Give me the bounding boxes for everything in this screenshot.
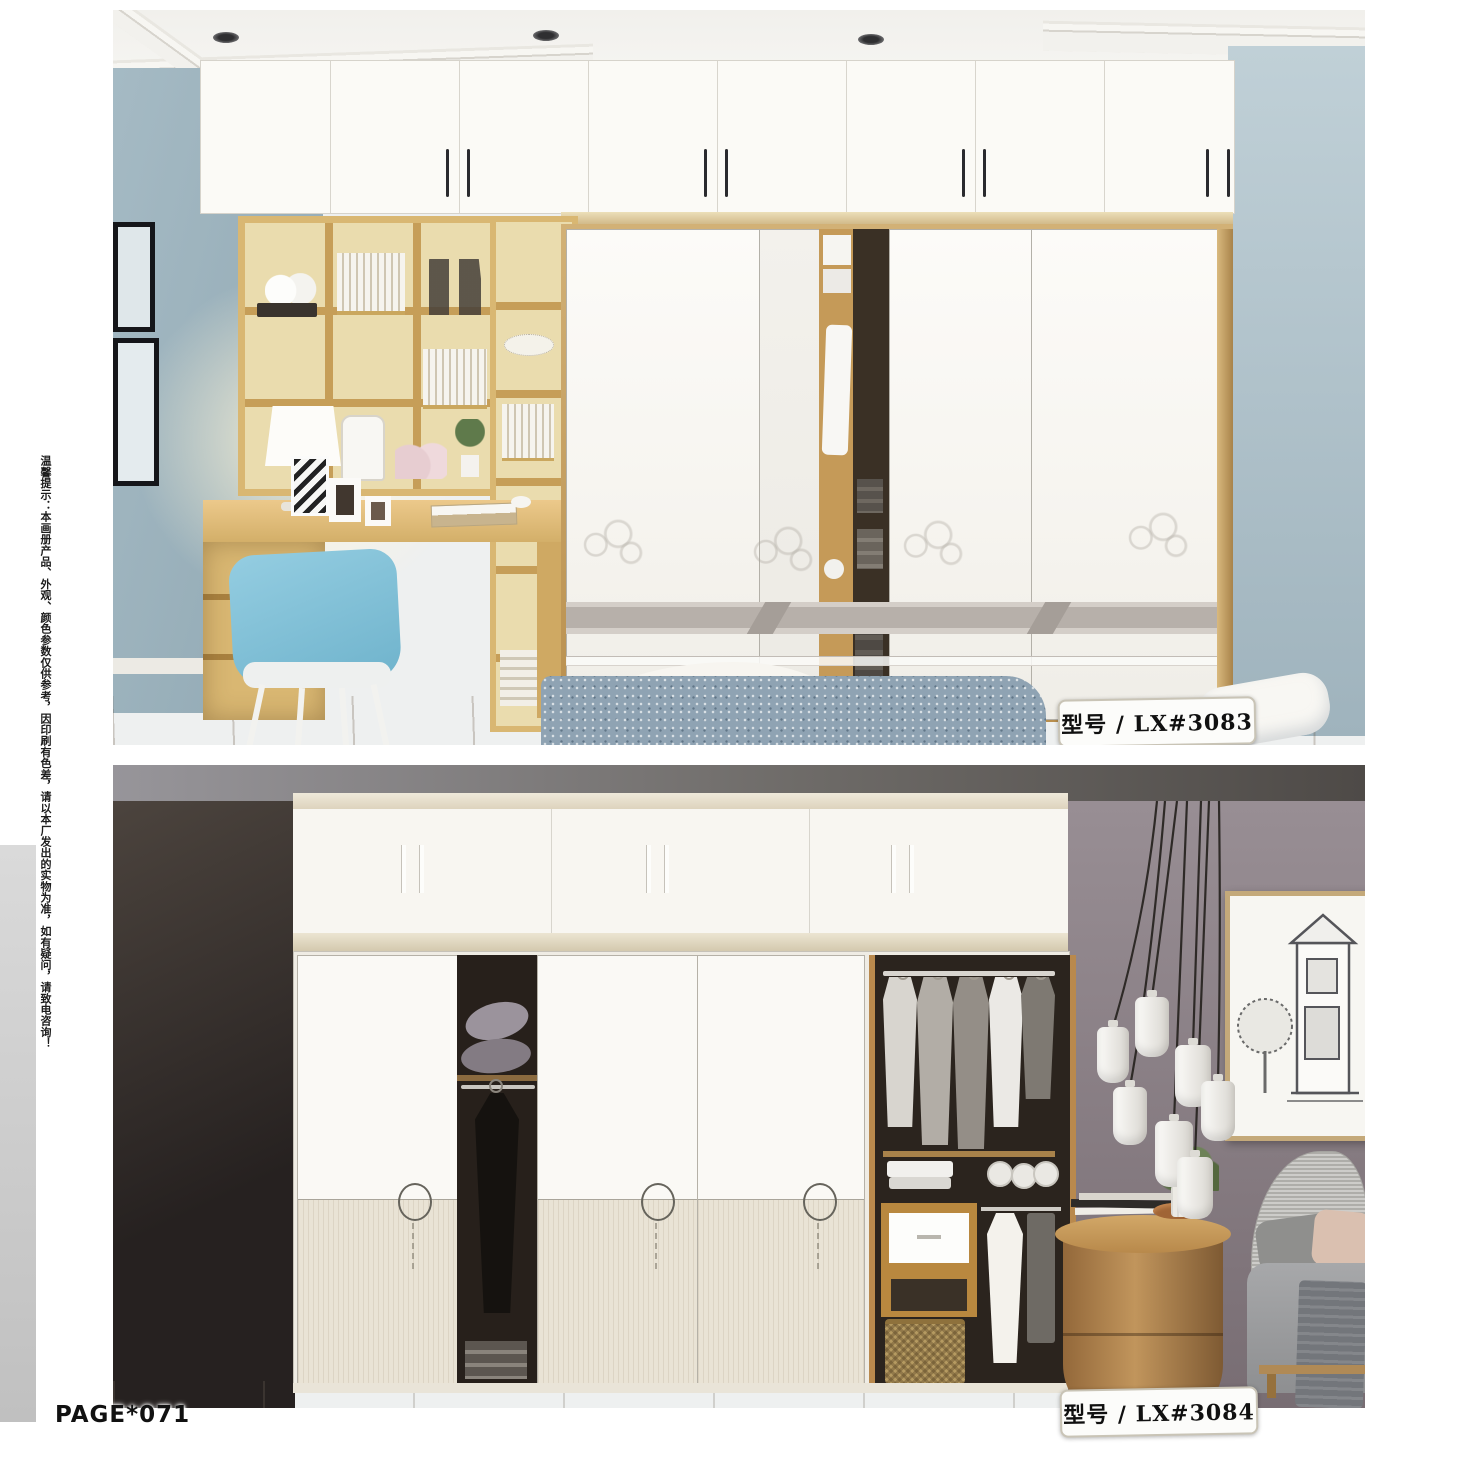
folded-clothes xyxy=(465,1341,527,1379)
cabinet-handle xyxy=(446,149,449,197)
photo-frame xyxy=(365,496,391,526)
books-row xyxy=(502,404,554,461)
floral-blanket xyxy=(541,676,1046,745)
cabinet-handle xyxy=(664,845,669,893)
hat-ball xyxy=(824,559,844,579)
cabinet-handle xyxy=(909,845,914,893)
cabinet-handle xyxy=(983,149,986,197)
cabinet-handle xyxy=(891,845,896,893)
bed-frame-rail xyxy=(1259,1365,1365,1374)
storage-box xyxy=(823,235,851,265)
zigzag-frame xyxy=(291,456,329,516)
pendant-lamp-shade xyxy=(1135,997,1169,1057)
lantern xyxy=(341,415,385,481)
cabinet-divider xyxy=(459,61,460,213)
photo-top-lx3083: 型号 / LX#3083 xyxy=(113,10,1365,745)
bed-leg xyxy=(1267,1374,1276,1398)
white-bowl xyxy=(504,334,554,356)
sliding-door-1 xyxy=(566,229,761,720)
cabinet-top-rail xyxy=(293,793,1068,809)
drawer-handle xyxy=(917,1235,941,1239)
cabinet-divider xyxy=(717,61,718,213)
wicker-basket xyxy=(885,1319,965,1384)
door-lower-woodgrain xyxy=(538,1199,698,1384)
photo-frame xyxy=(329,478,361,522)
bird-figurine xyxy=(265,273,317,305)
round-nightstand xyxy=(1055,1215,1231,1408)
cabinet-handle xyxy=(646,845,651,893)
baseboard xyxy=(113,658,213,674)
hanging-coat xyxy=(1021,977,1055,1099)
disclaimer-vertical-text: 温馨提示：本画册产品、外观、颜色参数仅供参考，因印刷有色差，请以本厂发出的实物为… xyxy=(40,455,51,1055)
hanging-apron xyxy=(987,1213,1023,1363)
cabinet-divider xyxy=(846,61,847,213)
pendant-cords xyxy=(1061,801,1365,1231)
ring-handle xyxy=(803,1183,837,1221)
cabinet-divider xyxy=(330,61,331,213)
page-number: PAGE*071 xyxy=(55,1402,190,1428)
shelf-opening xyxy=(891,1279,967,1311)
left-gray-strip xyxy=(0,845,36,1422)
emboss-squiggle xyxy=(412,1223,414,1269)
hanging-rod xyxy=(883,971,1055,976)
ring-handle xyxy=(398,1183,432,1221)
cabinet-handle xyxy=(962,149,965,197)
door-lower-woodgrain xyxy=(298,1199,458,1384)
hanging-shirt xyxy=(822,325,853,456)
cabinet-divider xyxy=(1104,61,1105,213)
nightstand-body xyxy=(1063,1235,1223,1408)
hanging-coat xyxy=(953,977,989,1149)
folded-clothes xyxy=(857,529,883,569)
cabinet-handle xyxy=(725,149,728,197)
sliding-door-2 xyxy=(759,229,821,720)
recessed-light xyxy=(533,30,559,41)
wall-dark-left xyxy=(113,801,295,1408)
wardrobe-base xyxy=(293,1383,1068,1393)
door-lower-woodgrain xyxy=(698,1199,864,1384)
recessed-light xyxy=(858,34,884,45)
pendant-lamp-shade xyxy=(1097,1027,1129,1083)
hanging-coat xyxy=(989,977,1023,1127)
chair-seat xyxy=(243,662,391,688)
folded-towels xyxy=(889,1177,951,1189)
model-label-text: 型号 / LX#3083 xyxy=(1061,704,1253,739)
storage-box xyxy=(823,269,851,293)
wardrobe-open-gap xyxy=(457,955,537,1383)
sliding-door-4 xyxy=(1031,229,1219,720)
emboss-flower xyxy=(903,516,967,570)
cabinet-handle xyxy=(419,845,424,893)
hanging-coat xyxy=(917,977,953,1145)
plant-pot xyxy=(461,455,479,477)
pillow xyxy=(459,1035,532,1076)
photo-bottom-lx3084 xyxy=(113,765,1365,1408)
sliding-door-3 xyxy=(889,229,1033,720)
hanging-coat xyxy=(883,977,917,1127)
door-decor-line xyxy=(566,656,1217,666)
model-label-text: 型号 / LX#3084 xyxy=(1063,1394,1255,1429)
upper-cabinet-row xyxy=(293,809,1068,933)
potted-plant xyxy=(455,419,485,459)
cabinet-handle xyxy=(1227,149,1230,197)
drawer-unit xyxy=(881,1203,977,1273)
cabinet-handle xyxy=(704,149,707,197)
band-step xyxy=(1027,602,1071,634)
folded-towels xyxy=(887,1161,953,1177)
folded-clothes xyxy=(857,479,883,513)
nightstand-seam xyxy=(1063,1333,1223,1336)
wood-stool-shelf xyxy=(881,1273,977,1317)
rolled-towel xyxy=(987,1161,1013,1187)
pendant-lamp-shade xyxy=(1113,1087,1147,1145)
model-label-badge: 型号 / LX#3083 xyxy=(1058,696,1257,745)
wardrobe-side-panel xyxy=(1217,229,1233,718)
wire-vases xyxy=(423,259,485,315)
emboss-squiggle xyxy=(817,1223,819,1269)
cabinet-divider xyxy=(809,809,810,933)
shelf-edge xyxy=(883,1151,1055,1157)
dark-box xyxy=(257,303,317,317)
rolled-towel xyxy=(1033,1161,1059,1187)
teacup xyxy=(511,496,531,508)
cabinet-bottom-rail xyxy=(293,933,1068,951)
emboss-squiggle xyxy=(655,1223,657,1269)
hanging-towel xyxy=(1027,1213,1055,1343)
band-step xyxy=(747,602,791,634)
wardrobe-open-section xyxy=(869,955,1076,1383)
hanger-hook xyxy=(489,1079,503,1093)
cabinet-handle xyxy=(1206,149,1209,197)
pendant-lamp-shade xyxy=(1201,1081,1235,1141)
hanging-rod xyxy=(981,1207,1061,1211)
emboss-flower xyxy=(1128,508,1192,562)
emboss-flower xyxy=(753,522,817,576)
cabinet-divider xyxy=(588,61,589,213)
cabinet-divider xyxy=(551,809,552,933)
sliding-door-2 xyxy=(537,955,699,1385)
ring-handle xyxy=(641,1183,675,1221)
catalog-page: 温馨提示：本画册产品、外观、颜色参数仅供参考，因印刷有色差，请以本厂发出的实物为… xyxy=(0,0,1484,1484)
cabinet-divider xyxy=(975,61,976,213)
sliding-door-1 xyxy=(297,955,459,1385)
pink-vases xyxy=(395,435,447,479)
cabinet-handle xyxy=(467,149,470,197)
upper-cabinet-row xyxy=(200,60,1235,214)
wall-picture-frame xyxy=(113,222,155,332)
door-decor-band xyxy=(566,602,1217,634)
emboss-flower xyxy=(583,515,647,569)
sliding-door-3 xyxy=(697,955,865,1385)
books-row xyxy=(337,253,405,315)
throw-blanket xyxy=(1295,1280,1365,1408)
cabinet-handle xyxy=(401,845,406,893)
desk-books xyxy=(431,503,518,528)
books-row xyxy=(423,349,487,409)
pendant-lamp-shade xyxy=(1177,1157,1213,1219)
recessed-light xyxy=(213,32,239,43)
model-label-badge: 型号 / LX#3084 xyxy=(1060,1386,1259,1437)
wall-picture-frame xyxy=(113,338,159,486)
wall-right-blue xyxy=(1228,46,1365,736)
hanging-garment-black xyxy=(475,1093,519,1313)
wardrobe-open-section xyxy=(819,229,889,718)
drawer-front xyxy=(889,1213,969,1263)
